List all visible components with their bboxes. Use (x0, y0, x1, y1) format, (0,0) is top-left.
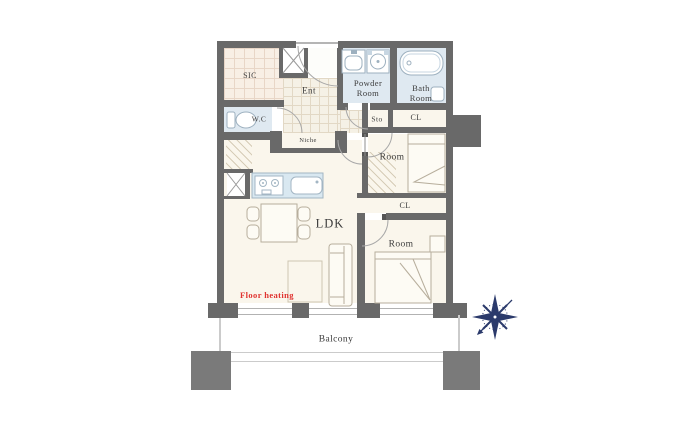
kitchen-counter-icon (252, 173, 323, 198)
label-floor-heating: Floor heating (240, 290, 294, 300)
sofa-icon (329, 244, 352, 306)
bed-icon (375, 252, 431, 303)
label-closet-mid: CL (399, 201, 410, 211)
label-sto: Sto (371, 115, 382, 124)
label-closet-top: CL (410, 113, 421, 123)
bed-icon (408, 134, 445, 192)
plan-symbols (0, 0, 700, 433)
label-wc: W.C (252, 115, 266, 124)
label-powder-room: Powder Room (354, 78, 382, 98)
dining-table-icon (247, 204, 310, 242)
label-balcony: Balcony (319, 334, 353, 345)
floor-plan: SIC Ent Powder Room Bath Room W.C Sto CL… (0, 0, 700, 433)
label-sic: SIC (243, 71, 257, 81)
washer-pan-icon (367, 50, 389, 73)
pipe-shaft-icon (227, 173, 245, 196)
label-niche: Niche (299, 137, 317, 145)
label-ent: Ent (302, 86, 316, 97)
compass-rose-icon (472, 294, 518, 340)
ldk-door-arc (338, 140, 362, 164)
wc-door-arc (277, 108, 302, 133)
label-bath-room: Bath Room (410, 83, 432, 103)
label-room-upper: Room (380, 152, 405, 163)
powder-door-arc (346, 107, 368, 129)
label-ldk: LDK (316, 217, 345, 232)
room-lower-door-arc (362, 220, 388, 246)
washbasin-icon (342, 50, 365, 73)
label-room-lower: Room (389, 239, 414, 250)
nightstand-icon (430, 236, 445, 252)
